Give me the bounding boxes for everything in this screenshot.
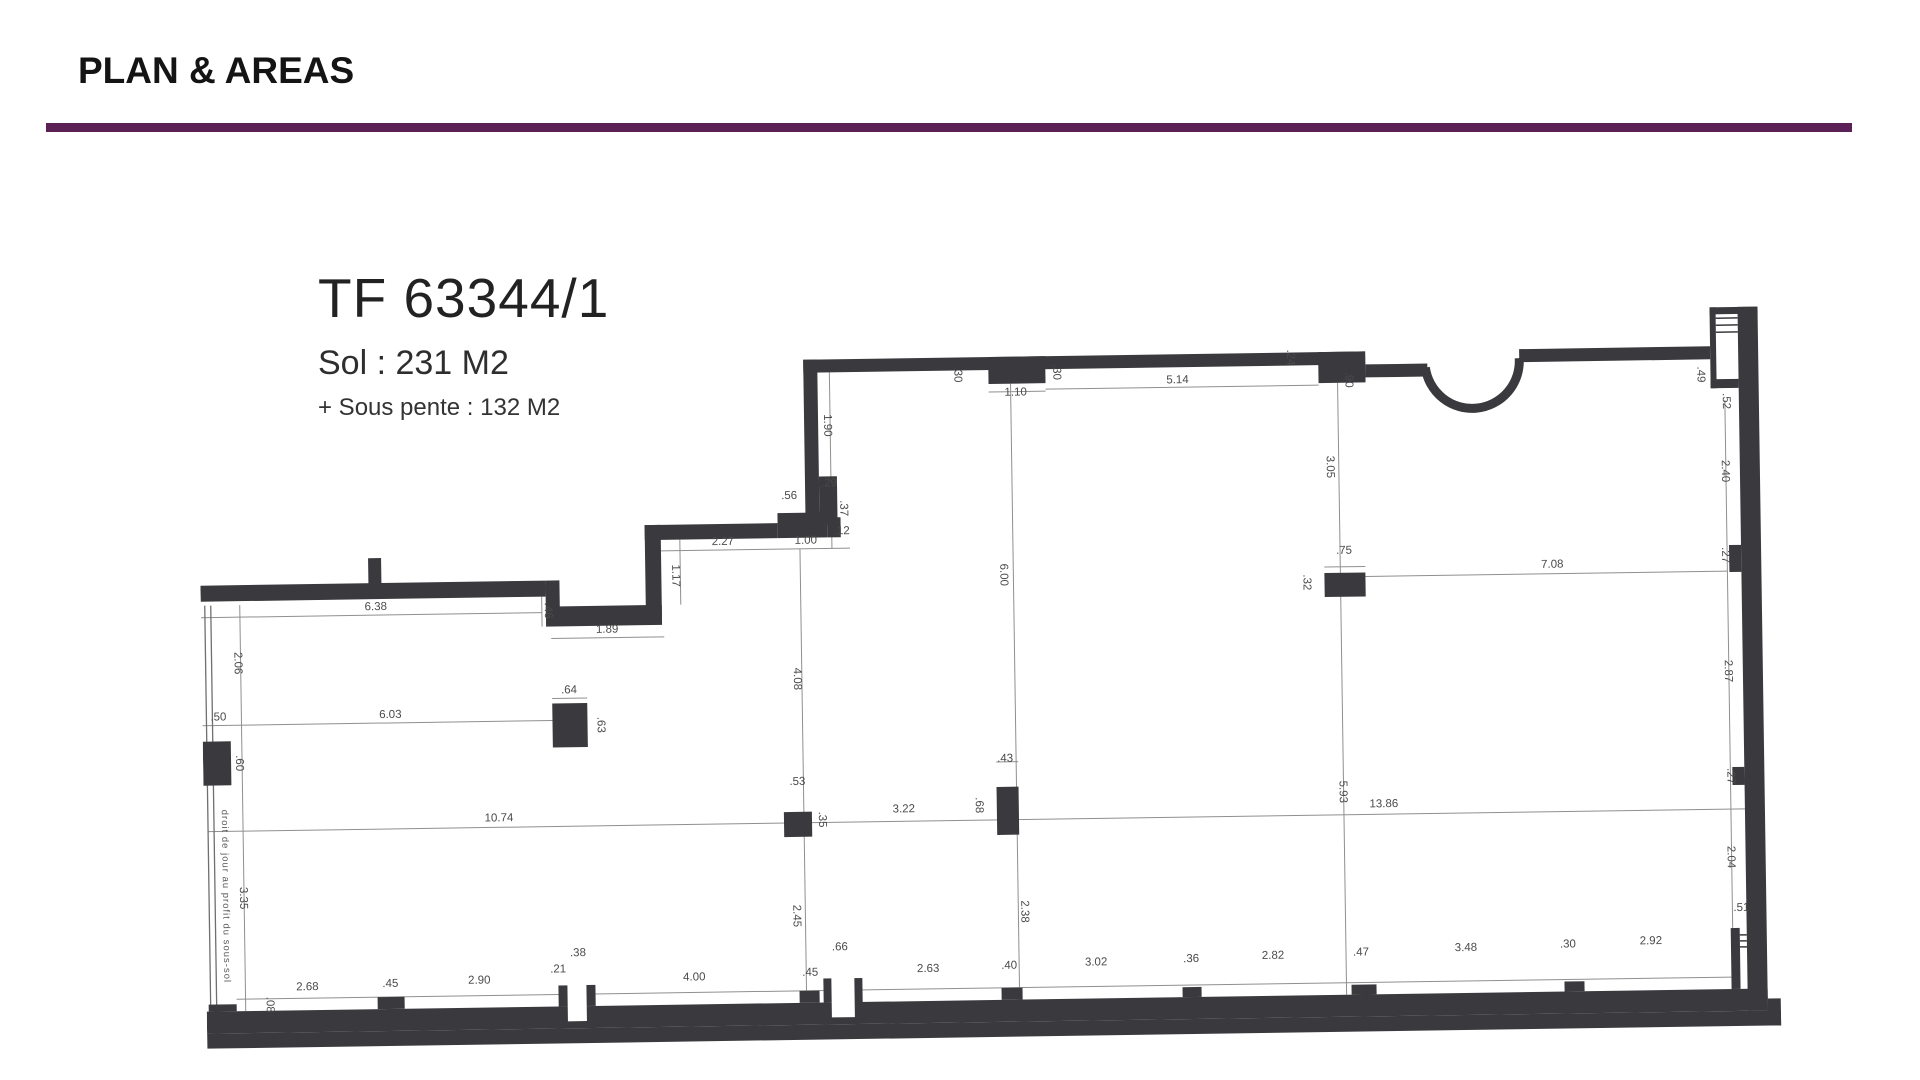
dimension-label: .47 xyxy=(1353,946,1369,958)
dimension-label: 2.63 xyxy=(917,963,940,975)
accent-rule xyxy=(46,123,1852,132)
dimension-label: .68 xyxy=(973,797,985,813)
dimension-label: .30 xyxy=(1560,938,1576,950)
dimension-label: 13.86 xyxy=(1369,798,1398,810)
dimension-labels: 6.38.461.892.06.506.03.64.63.603.35.081.… xyxy=(205,343,1750,1014)
dimension-label: 6.00 xyxy=(997,564,1009,587)
dimension-label: .38 xyxy=(570,947,586,959)
dimension-label: 3.05 xyxy=(1324,456,1336,479)
dimension-label: 6.38 xyxy=(364,601,387,613)
dimension-label: .35 xyxy=(816,811,828,827)
dimension-label: 2.82 xyxy=(1262,950,1285,962)
dimension-label: .27 xyxy=(1724,768,1736,784)
boundary-note: droit de jour au profit du sous-sol xyxy=(219,810,233,984)
dimension-label: .75 xyxy=(1336,545,1352,557)
dimension-label: 2.90 xyxy=(468,974,491,986)
dimension-label: 3.48 xyxy=(1455,942,1478,954)
dimension-label: .37 xyxy=(837,500,849,516)
dimension-label: .60 xyxy=(233,755,245,771)
dimension-label: 2.38 xyxy=(1018,900,1030,923)
dimension-label: 2.92 xyxy=(1640,935,1663,947)
dimension-label: 2.04 xyxy=(1724,846,1736,869)
dimension-label: .45 xyxy=(802,967,818,979)
dimension-label: .08 xyxy=(264,997,276,1013)
dimension-label: .49 xyxy=(1694,366,1706,382)
dimension-label: .29 xyxy=(821,477,837,489)
dimension-label: .43 xyxy=(997,753,1013,765)
dimension-label: 3.35 xyxy=(237,887,249,910)
dimension-label: 2.68 xyxy=(296,981,319,993)
floor-plan: droit de jour au profit du sous-sol 6.38… xyxy=(196,288,1787,1080)
dimension-label: 2.40 xyxy=(1719,460,1731,483)
dimension-label: 1.00 xyxy=(795,535,818,547)
dimension-label: .36 xyxy=(1183,953,1199,965)
walls xyxy=(197,306,1781,1048)
dimension-label: .24 xyxy=(1284,349,1296,366)
dimension-label: .32 xyxy=(1300,574,1312,590)
dimension-label: .40 xyxy=(1001,960,1017,972)
dimension-label: 6.03 xyxy=(379,709,402,721)
dimension-label: .51 xyxy=(1733,902,1749,914)
dimension-label: .21 xyxy=(550,963,566,975)
page-title: PLAN & AREAS xyxy=(78,50,354,92)
dimension-label: 7.08 xyxy=(1541,559,1564,571)
dimension-label: .50 xyxy=(210,711,226,723)
dimension-label: 2.27 xyxy=(712,536,735,548)
curved-wall-niche xyxy=(1425,358,1520,409)
dimension-label: .90 xyxy=(1342,372,1354,388)
dimension-label: 5.93 xyxy=(1336,781,1348,804)
dimension-label: 3.22 xyxy=(893,803,916,815)
dimension-label: .64 xyxy=(561,684,578,696)
dimension-label: .12 xyxy=(834,525,850,537)
dimension-label: .30 xyxy=(1050,364,1062,380)
dimension-label: .53 xyxy=(789,776,805,788)
dimension-label: .30 xyxy=(951,366,963,382)
dimension-label: .27 xyxy=(1719,547,1731,563)
dimension-lines xyxy=(197,359,1747,1012)
dimension-label: 4.00 xyxy=(683,971,706,983)
dimension-label: 3.02 xyxy=(1085,956,1108,968)
document-page: PLAN & AREAS TF 63344/1 Sol : 231 M2 + S… xyxy=(0,0,1920,1080)
floor-plan-svg: droit de jour au profit du sous-sol 6.38… xyxy=(196,288,1787,1080)
dimension-label: 1.17 xyxy=(669,564,681,587)
dimension-label: .63 xyxy=(594,717,606,733)
dimension-label: 1.90 xyxy=(821,414,833,437)
dimension-label: .66 xyxy=(832,941,848,953)
dimension-label: 4.08 xyxy=(791,668,803,691)
dimension-label: 1.89 xyxy=(596,624,619,636)
dimension-label: 10.74 xyxy=(484,812,514,824)
dimension-label: .52 xyxy=(1720,393,1732,409)
dimension-label: 5.14 xyxy=(1166,374,1189,386)
dimension-label: 2.87 xyxy=(1722,660,1734,683)
dimension-label: .46 xyxy=(542,602,554,618)
dimension-label: 2.06 xyxy=(231,652,243,675)
dimension-label: .56 xyxy=(781,490,797,502)
dimension-label: 1.10 xyxy=(1004,386,1027,398)
property-boundary-lines xyxy=(205,606,217,1012)
dimension-label: .45 xyxy=(382,978,398,990)
dimension-label: 2.45 xyxy=(790,905,802,928)
